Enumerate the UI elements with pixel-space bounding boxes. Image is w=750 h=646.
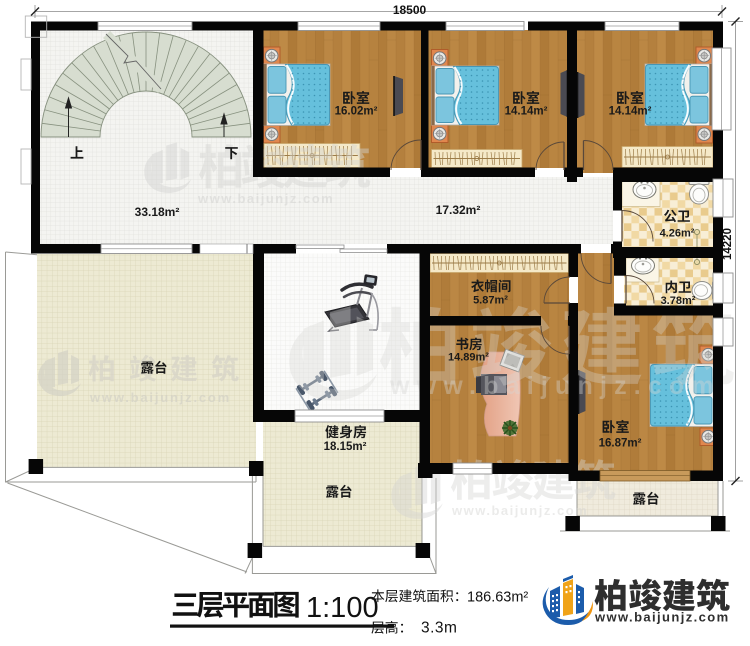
svg-text:18500: 18500 [393, 3, 427, 17]
svg-text:www.baijunjz.com: www.baijunjz.com [197, 191, 334, 206]
svg-text:1:100: 1:100 [306, 592, 379, 624]
svg-text:18.15m²: 18.15m² [324, 441, 367, 453]
svg-text:www.baijunjz.com: www.baijunjz.com [89, 390, 231, 405]
svg-text:14.14m²: 14.14m² [609, 106, 652, 118]
svg-text:33.18m²: 33.18m² [135, 205, 180, 219]
svg-text:www.baijunjz.com: www.baijunjz.com [594, 610, 730, 625]
svg-text:16.87m²: 16.87m² [599, 438, 642, 450]
svg-text:3.78m²: 3.78m² [661, 295, 696, 307]
svg-text:14.89m²: 14.89m² [448, 352, 489, 364]
svg-text:14.14m²: 14.14m² [505, 106, 548, 118]
svg-text:3.3m: 3.3m [421, 620, 457, 637]
svg-text:www.baijunjz.com: www.baijunjz.com [389, 372, 721, 400]
svg-text:186.63m²: 186.63m² [467, 590, 528, 606]
svg-text:5.87m²: 5.87m² [473, 295, 508, 307]
svg-text:17.32m²: 17.32m² [436, 203, 481, 217]
svg-text:4.26m²: 4.26m² [660, 228, 695, 240]
svg-text:16.02m²: 16.02m² [335, 106, 378, 118]
svg-text:www.baijunjz.com: www.baijunjz.com [451, 503, 588, 518]
svg-text:14220: 14220 [722, 228, 734, 260]
